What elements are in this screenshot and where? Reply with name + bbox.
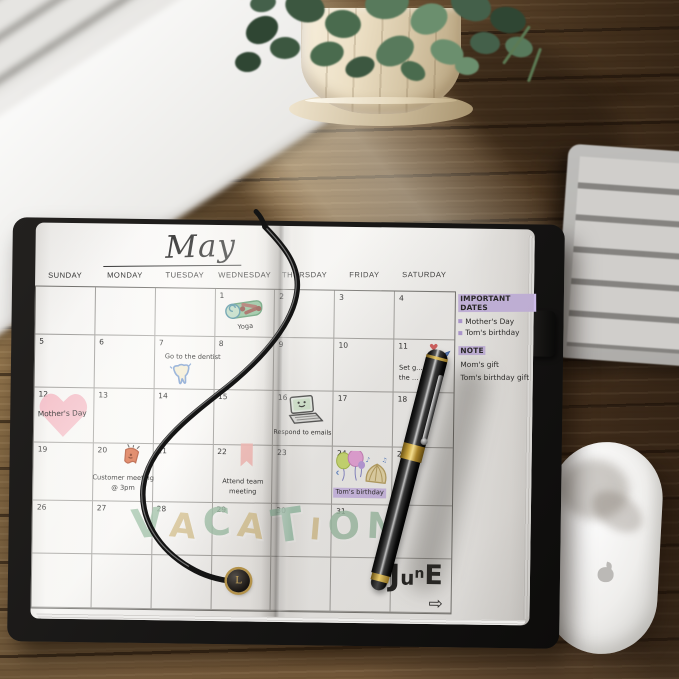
keyboard-keys [567,156,679,362]
date-number: 2 [279,292,284,301]
calendar-event: Yoga [215,289,275,337]
date-number: 9 [279,340,284,349]
vacation-letter: C [202,502,232,541]
calendar-cell: 21 [153,444,214,503]
leaf [469,30,501,55]
day-header: WEDNESDAY [215,270,275,279]
date-number: 14 [158,391,168,400]
calendar-cell [91,554,152,609]
calendar-cell: 1Yoga [215,289,276,338]
calendar-cell [35,286,96,335]
ribbon-icon [239,443,253,467]
event-label: Mother's Day [34,407,90,419]
vacation-letter: A [168,508,198,544]
date-number: 3 [339,293,344,302]
calendar-cell: 4 [394,292,455,341]
calendar-cell [32,553,93,608]
date-number: 15 [218,392,228,401]
date-number: 13 [98,390,108,399]
calendar-event: Attend team meeting [213,445,273,503]
note-title: NOTE [458,345,485,354]
vacation-letter: T [268,500,306,550]
important-date-label: Tom's birthday [465,328,519,337]
day-header: MONDAY [95,271,155,280]
calendar-cell: 13 [94,388,155,444]
date-number: 8 [219,339,224,348]
calendar-cell: 5 [35,334,96,388]
leaf [234,51,262,74]
calendar-cell: 10 [334,339,395,393]
leaf [308,38,347,70]
tooth-icon [167,361,195,387]
date-number: 19 [38,445,48,454]
keyboard [554,144,679,375]
vacation-letter: I [308,515,322,546]
plant-leaves [215,0,535,132]
calendar-event: Go to the dentist [154,336,214,389]
planner-notebook: May SUNDAYMONDAYTUESDAYWEDNESDAYTHURSDAY… [7,217,565,649]
leaf [249,0,278,14]
leaf [324,9,362,39]
vacation-letter: O [326,505,362,546]
calendar-event: Respond to emails [273,391,333,446]
day-header: FRIDAY [334,270,394,279]
calendar-event: Customer meeting @ 3pm [93,443,153,501]
leaf [455,57,480,76]
calendar-cell [155,288,216,337]
calendar-cell: 6 [94,335,155,389]
day-header: TUESDAY [155,270,215,279]
date-number: 21 [157,446,167,455]
day-header: THURSDAY [275,270,335,279]
calendar-cell: 19 [33,442,94,501]
leaf [343,53,378,82]
important-date-label: Mother's Day [465,316,514,325]
day-header: SUNDAY [35,271,95,280]
bullet-square-icon [458,331,462,335]
cake-icon [362,455,392,487]
date-number: 26 [37,503,47,512]
vacation-letter: A [236,508,267,545]
calendar-event: Tom's birthday [332,447,392,505]
calendar-cell: 9 [274,338,335,392]
bell-icon [119,443,144,469]
calendar-cell: 20Customer meeting @ 3pm [93,443,154,502]
important-date-item: Mother's Day [458,316,536,325]
bullet-square-icon [458,319,462,323]
calendar-cell: 16Respond to emails [273,391,334,447]
event-label: Respond to emails [269,428,335,438]
date-number: 6 [99,337,104,346]
right-arrow-icon: ⇨ [428,594,443,614]
important-date-item: Tom's birthday [458,328,536,337]
date-number: 5 [39,337,44,346]
calendar-cell: 17 [333,392,394,448]
title-underline [103,265,241,268]
date-number: 17 [338,394,348,403]
event-label: Tom's birthday [333,488,385,499]
leaf [270,37,300,60]
calendar-cell: 24Tom's birthday [332,447,393,506]
laptop-icon [285,393,324,428]
date-number: 18 [398,395,408,404]
calendar-cell: 12Mother's Day [34,387,95,443]
important-dates-list: Mother's DayTom's birthday [458,316,536,337]
calendar-cell: 15 [213,390,274,446]
leaf [363,0,411,22]
calendar-cell: 2 [275,290,336,339]
leaf [406,0,452,40]
month-title: May [130,227,271,267]
date-number: 27 [97,503,107,512]
leaf [281,0,328,27]
calendar-cell: 8 [214,337,275,391]
charm-letter: L [227,569,250,592]
important-dates-title: IMPORTANT DATES [458,294,536,312]
event-label: Attend team meeting [213,477,273,498]
calendar-cell [271,557,332,612]
calendar-cell: 26 [32,500,93,554]
vacation-letter: V [130,503,165,546]
calendar-event: Mother's Day [34,387,94,442]
leaf [488,4,529,37]
calendar-cell: 22Attend team meeting [213,445,274,504]
calendar-cell: 23 [272,446,333,505]
leaf [446,0,497,27]
calendar-cell [95,287,156,336]
date-number: 10 [338,341,348,350]
calendar-cell: 3 [335,291,396,340]
calendar-cell: 7Go to the dentist [154,336,215,390]
day-header: SATURDAY [394,270,454,279]
bookmark-charm: L [227,569,250,592]
calendar-cell [151,555,212,610]
date-number: 4 [399,294,404,303]
calendar-cell: 14 [154,389,215,445]
apple-logo-icon [596,562,615,583]
date-number: 23 [277,448,287,457]
day-header-row: SUNDAYMONDAYTUESDAYWEDNESDAYTHURSDAYFRID… [35,270,454,280]
event-label: Customer meeting @ 3pm [88,473,158,494]
